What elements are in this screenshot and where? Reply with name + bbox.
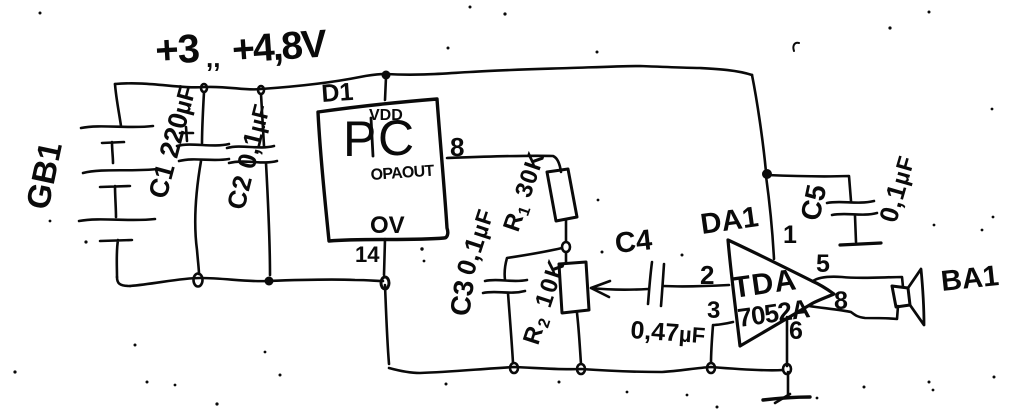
svg-text:3: 3: [707, 297, 720, 324]
svg-text:OV: OV: [370, 212, 405, 239]
svg-text:+3: +3: [154, 27, 200, 73]
svg-text:1: 1: [783, 221, 797, 249]
svg-text:6: 6: [789, 317, 803, 345]
svg-text:D1: D1: [320, 78, 354, 108]
svg-text:C4: C4: [613, 224, 653, 260]
svg-text:2: 2: [700, 260, 714, 290]
svg-text:BA1: BA1: [939, 260, 1000, 298]
svg-text:14: 14: [355, 242, 380, 267]
svg-text:,,: ,,: [206, 43, 220, 73]
svg-text:5: 5: [816, 250, 830, 278]
svg-text:C: C: [378, 110, 414, 166]
svg-text:+4,8V: +4,8V: [231, 22, 329, 72]
svg-text:C3: C3: [444, 278, 480, 318]
